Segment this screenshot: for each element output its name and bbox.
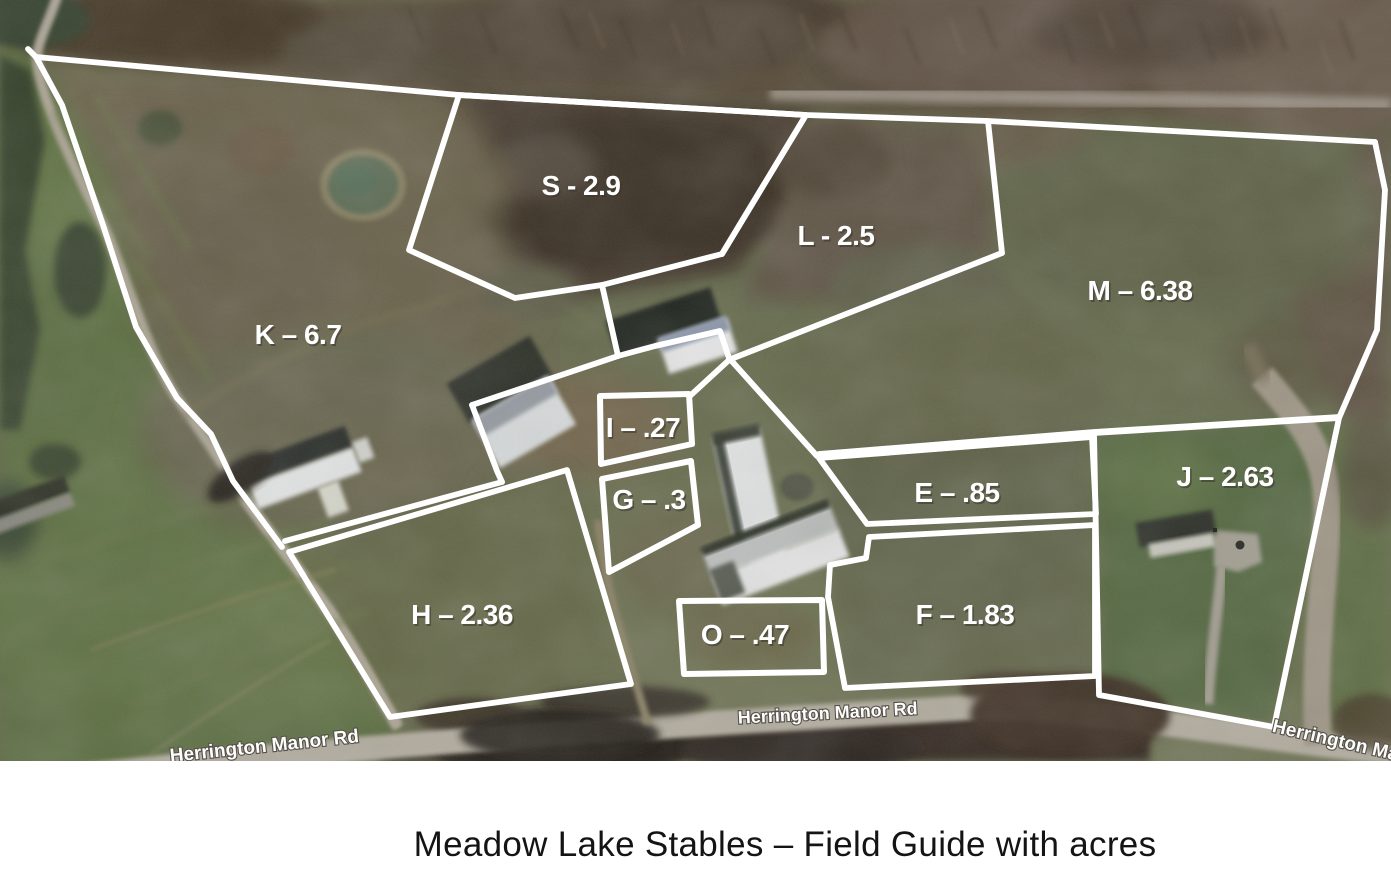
svg-text:S - 2.9: S - 2.9 [542,170,621,201]
svg-text:O – .47: O – .47 [701,619,789,650]
svg-text:L - 2.5: L - 2.5 [798,220,875,251]
svg-text:Meadow Lake Stables – Field Gu: Meadow Lake Stables – Field Guide with a… [414,825,1157,864]
svg-text:K – 6.7: K – 6.7 [255,319,342,350]
svg-text:F – 1.83: F – 1.83 [916,599,1015,630]
svg-text:G – .3: G – .3 [612,484,685,515]
svg-text:J – 2.63: J – 2.63 [1176,461,1273,492]
svg-text:M – 6.38: M – 6.38 [1088,275,1193,306]
svg-text:E – .85: E – .85 [914,477,999,508]
svg-text:H – 2.36: H – 2.36 [411,599,513,630]
svg-text:I – .27: I – .27 [606,412,680,443]
